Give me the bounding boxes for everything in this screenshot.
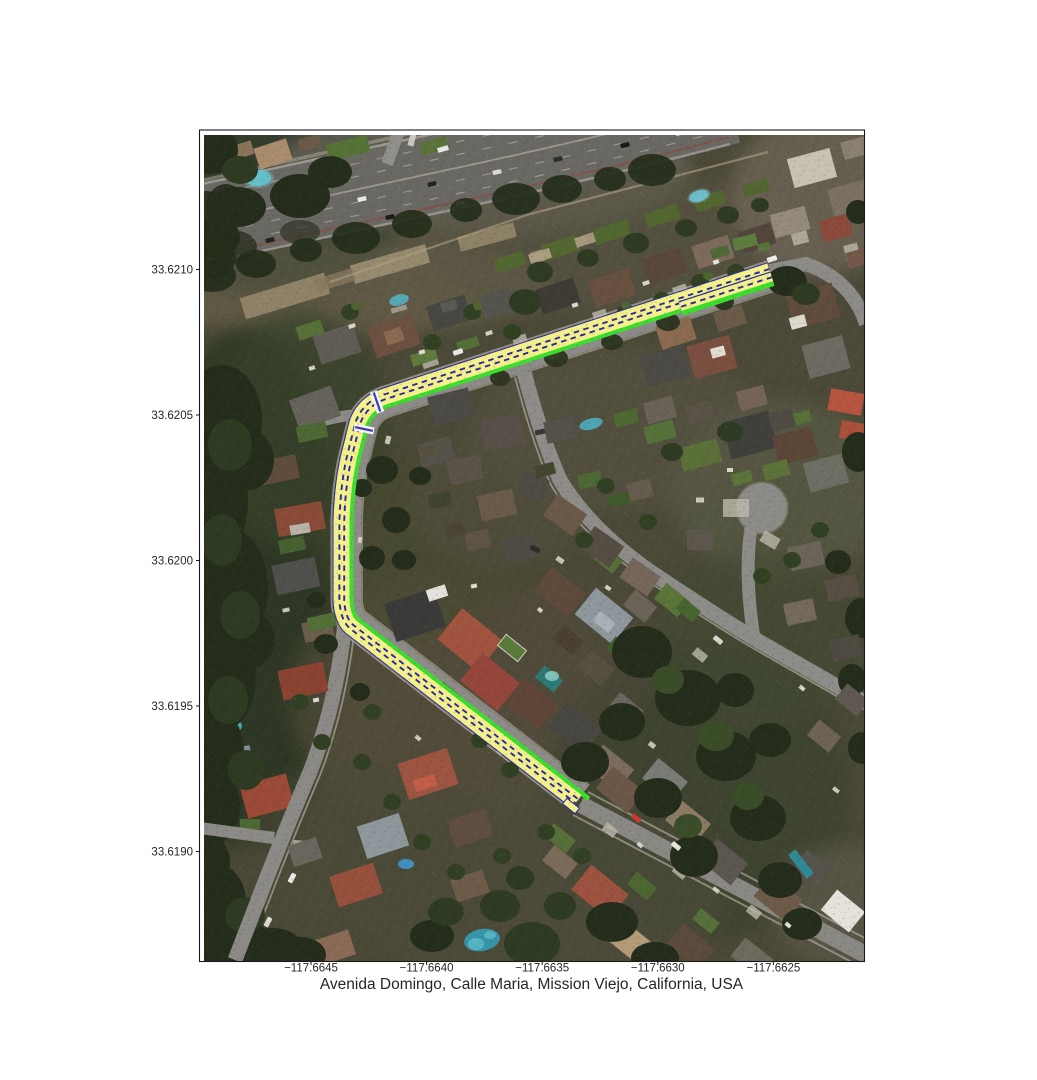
svg-text:33.6205: 33.6205 — [151, 410, 193, 422]
svg-text:33.6190: 33.6190 — [151, 847, 193, 859]
svg-text:−117.6635: −117.6635 — [515, 963, 569, 975]
svg-text:33.6195: 33.6195 — [151, 701, 193, 713]
svg-text:Avenida Domingo, Calle Maria,: Avenida Domingo, Calle Maria, Mission Vi… — [320, 976, 744, 993]
svg-text:−117.6640: −117.6640 — [400, 963, 454, 975]
svg-text:−117.6630: −117.6630 — [631, 963, 685, 975]
svg-text:−117.6645: −117.6645 — [284, 963, 338, 975]
svg-text:33.6200: 33.6200 — [151, 556, 193, 568]
svg-text:33.6210: 33.6210 — [151, 265, 193, 277]
svg-text:−117.6625: −117.6625 — [746, 963, 800, 975]
